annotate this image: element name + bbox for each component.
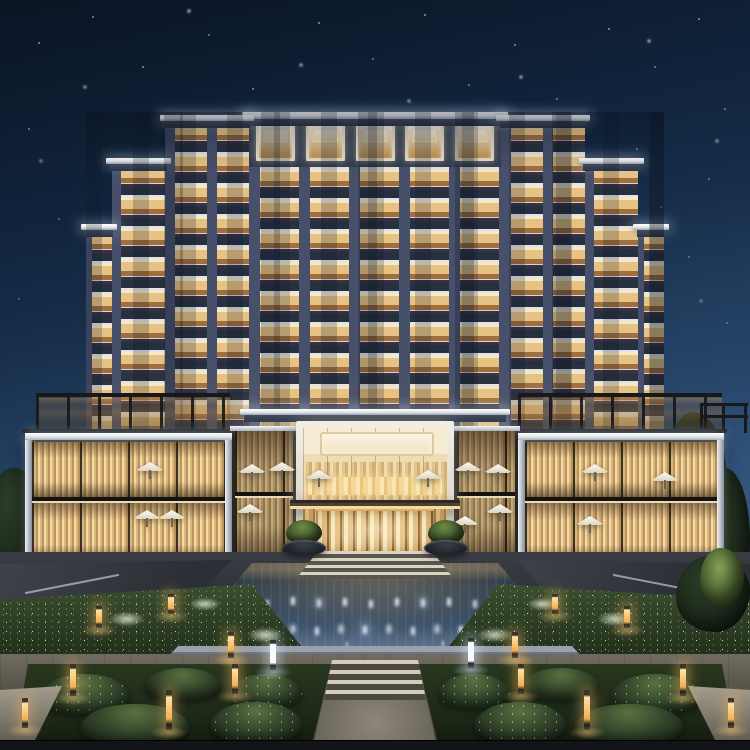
terrace-floor-divider (235, 492, 293, 498)
white-bloom-patch (110, 612, 144, 626)
far-right-cornice-led (633, 224, 669, 230)
pavilion-corner-pier (518, 440, 525, 563)
left-recessed-terraces (232, 426, 296, 562)
amber-bollard-light (552, 594, 558, 614)
white-bloom-patch (190, 598, 220, 610)
amber-bollard-light (22, 698, 28, 728)
left-step-cornice-led (106, 158, 171, 164)
tower-center-block (249, 167, 501, 445)
amber-bollard-light (96, 606, 102, 628)
planter-bowl (424, 540, 468, 556)
amber-bollard-light (166, 690, 172, 730)
right-pergola-terrace (518, 393, 722, 433)
patio-umbrella (582, 464, 608, 482)
far-left-cornice-led (81, 224, 117, 230)
hedge-mound (210, 702, 302, 742)
patio-umbrella (159, 510, 185, 528)
pavilion-upper-glass (525, 442, 717, 497)
white-bollard-light (270, 640, 276, 670)
center-cornice-led (242, 112, 508, 119)
patio-umbrella (237, 504, 263, 522)
entrance-atrium (296, 421, 454, 562)
pavilion-corner-pier (717, 440, 724, 563)
hedge-mound (474, 702, 566, 742)
amber-bollard-light (70, 664, 76, 696)
amber-bollard-light (584, 690, 590, 730)
top-floor-bay (306, 123, 345, 161)
amber-bollard-light (168, 594, 174, 614)
hedge-mound (144, 668, 222, 700)
amber-bollard-light (512, 632, 518, 658)
left-flank-cornice-led (160, 115, 254, 121)
transom-panel (462, 129, 487, 142)
patio-umbrella (487, 504, 513, 522)
patio-umbrella (306, 470, 332, 488)
amber-bollard-light (680, 664, 686, 696)
top-floor-bay (356, 123, 395, 161)
pavilion-corner-pier (225, 440, 232, 563)
patio-umbrella (239, 464, 265, 482)
amber-bollard-light (728, 698, 734, 728)
patio-umbrella (415, 470, 441, 488)
pavilion-upper-glass (32, 442, 225, 497)
pavilion-fascia-led (25, 433, 232, 440)
patio-umbrella (455, 462, 481, 480)
planter-bowl (282, 540, 326, 556)
terrace-floor-divider (457, 492, 515, 498)
top-floor-bay (455, 123, 494, 161)
entrance-steps (296, 551, 454, 579)
ceiling-cove-light (320, 432, 434, 456)
patio-umbrella (269, 462, 295, 480)
pavilion-fascia-led (518, 433, 724, 440)
patio-umbrella (137, 462, 163, 480)
top-floor-bay (405, 123, 444, 161)
hotel-night-scene: Luxury hotel exterior at night (0, 0, 750, 750)
patio-umbrella (485, 464, 511, 482)
amber-bollard-light (232, 664, 238, 694)
entrance-canopy (290, 500, 460, 509)
right-flank-cornice-led (496, 115, 590, 121)
amber-bollard-light (624, 606, 630, 628)
left-pergola-terrace (36, 393, 230, 433)
amber-bollard-light (518, 664, 524, 694)
transom-panel (313, 129, 338, 142)
right-recessed-terraces (454, 426, 518, 562)
patio-umbrella (134, 510, 160, 528)
tower-top-floor (249, 119, 501, 167)
left-glass-pavilion (25, 433, 232, 563)
patio-umbrella (652, 472, 678, 490)
podium-cornice-led (240, 409, 510, 415)
patio-umbrella (577, 516, 603, 534)
right-glass-pavilion (518, 433, 724, 563)
white-bloom-patch (478, 628, 512, 642)
transom-panel (412, 129, 437, 142)
right-step-cornice-led (579, 158, 644, 164)
hedge-mound (438, 674, 510, 708)
white-bollard-light (468, 638, 474, 668)
amber-bollard-light (228, 632, 234, 658)
white-bloom-patch (248, 628, 282, 642)
transom-panel (363, 129, 388, 142)
foreground-shadow-strip (0, 740, 750, 750)
gold-framed-doors (316, 509, 434, 553)
transom-panel (263, 129, 288, 142)
pavilion-corner-pier (25, 440, 32, 563)
top-floor-bay (256, 123, 295, 161)
